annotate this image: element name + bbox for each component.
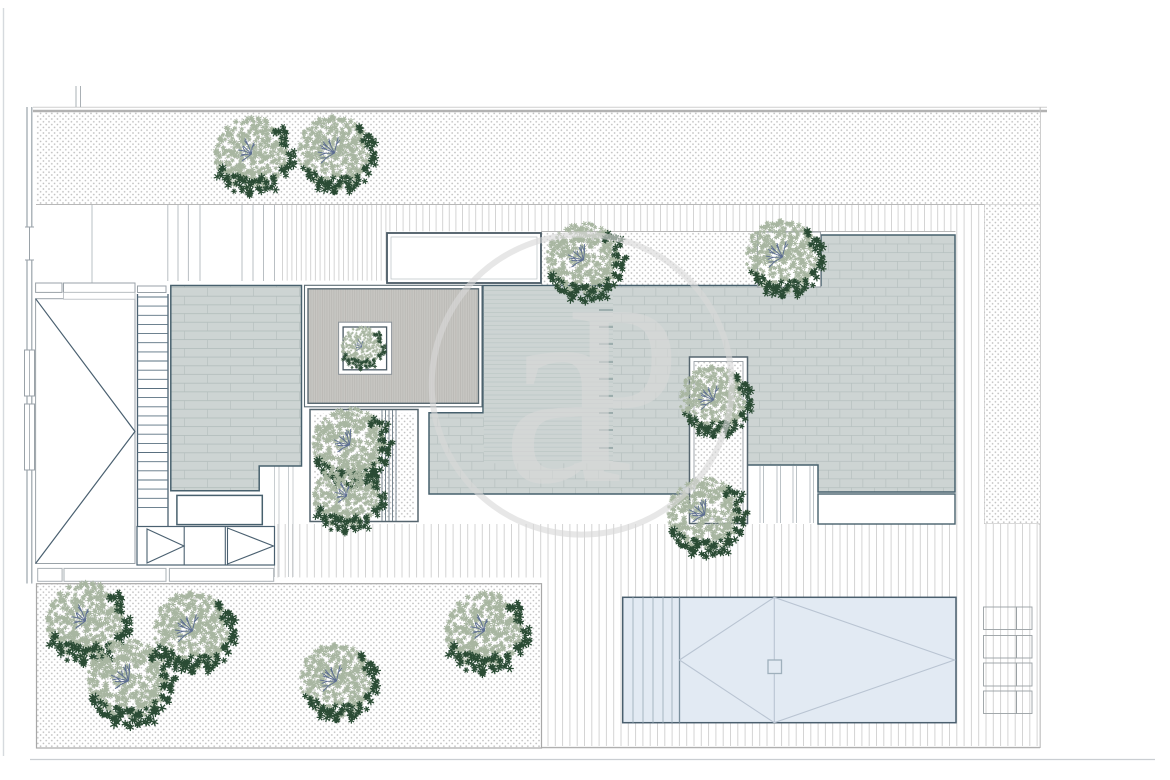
svg-text:P: P: [567, 257, 680, 523]
